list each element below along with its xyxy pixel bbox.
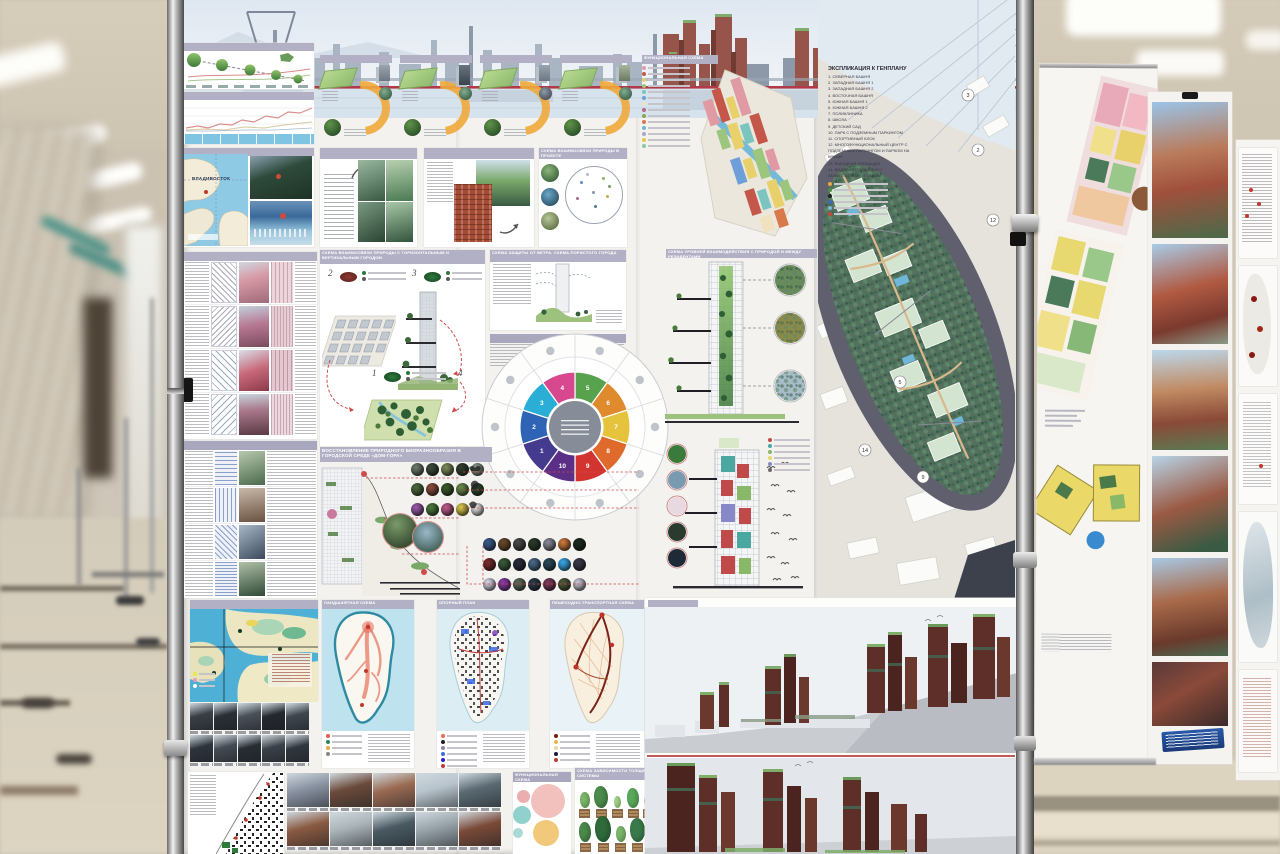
site-photo: [262, 735, 285, 766]
legend-row: [441, 746, 477, 750]
display-pole-left: [167, 0, 184, 854]
species-photo-dot: [483, 558, 496, 571]
species-photo-dot: [573, 538, 586, 551]
transport-graphic: [550, 609, 644, 731]
species-matrix-lower: [483, 538, 633, 598]
species-photo-dot: [471, 483, 484, 496]
reference-graphic: [437, 609, 529, 731]
legend-row: [642, 138, 690, 142]
analogues-table-2: [184, 441, 317, 598]
cycle-diagrams-row: [320, 55, 640, 147]
venn-title: ФУНКЦИОНАЛЬНАЯ СХЕМА: [513, 772, 571, 782]
site-photo: [238, 703, 261, 734]
venn-circle: [533, 820, 559, 846]
cycle-diagram: [480, 63, 554, 149]
location-label: ВЛАДИВОСТОК: [192, 176, 230, 181]
wheel-segment-number: 3: [540, 400, 544, 407]
legend-row: [768, 444, 810, 448]
before-after-panel-2: [424, 148, 534, 247]
transport-legend: [554, 734, 590, 764]
legend-row: [828, 206, 888, 210]
stand-foot: [116, 596, 144, 605]
site-photo: [238, 735, 261, 766]
legend-row: [554, 758, 590, 762]
site-photo: [416, 773, 458, 811]
site-photo: [330, 812, 372, 850]
species-photo-dot: [426, 463, 439, 476]
site-photo: [330, 773, 372, 811]
pole-clamp: [1012, 214, 1038, 232]
render-photo: [1152, 350, 1228, 450]
marina-photo: [250, 201, 312, 245]
site-photo: [286, 735, 309, 766]
legend-row: [642, 132, 690, 136]
interaction-title: СХЕМА УРОВНЕЙ ВЗАИМОДЕЙСТВИЯ С ПРИРОДОЙ …: [666, 249, 817, 258]
legend-row: [642, 120, 690, 124]
wheel-segment-number: 7: [614, 424, 618, 431]
species-photo-dot: [471, 463, 484, 476]
site-photo: [459, 773, 501, 811]
stand-crossbar: [92, 572, 164, 577]
step-number: 1: [372, 368, 377, 378]
chart-axis-strip: [184, 134, 314, 144]
figure-ground-graphic: [216, 772, 284, 854]
aerial-photo: [250, 156, 312, 199]
legend-row: [828, 194, 888, 198]
plan-number: 9: [921, 475, 924, 481]
interaction-legend: [768, 438, 810, 474]
wheel-segment-number: 8: [606, 448, 610, 455]
plan-number: 3: [966, 93, 969, 99]
legend-row: [642, 66, 690, 70]
site-photo: [287, 812, 329, 850]
stand-pole: [77, 468, 81, 586]
legend-row: [642, 102, 690, 106]
exhibit-label-plaque: [1161, 728, 1224, 752]
site-photo: [214, 703, 237, 734]
sketch-map: [1239, 512, 1277, 662]
masterplan: 23591214 ЭКСПЛИКАЦИЯ К ГЕНПЛАНУ 1. СЕВЕР…: [818, 0, 1015, 618]
legend-row: [193, 672, 215, 676]
species-photo-dot: [558, 538, 571, 551]
plan-number: 5: [898, 380, 901, 386]
render-photo: [1152, 558, 1228, 656]
pole-clamp: [164, 740, 187, 756]
tree-species: [627, 788, 639, 818]
legend-row: [642, 90, 690, 94]
stand-foot: [56, 754, 92, 764]
perspective-render-1: [645, 607, 1017, 753]
bathymetry-map: [190, 600, 318, 700]
industrial-photos-grid: [190, 703, 318, 767]
species-photo-dot: [543, 558, 556, 571]
reference-title: ОПОРНЫЙ ПЛАН: [437, 600, 529, 609]
species-photo-dot: [498, 538, 511, 551]
site-photo: [214, 735, 237, 766]
legend-row: [642, 72, 690, 76]
sketch-map: [1239, 148, 1277, 258]
floor-plan-graphic: [1035, 70, 1157, 631]
plan-number: 14: [862, 448, 868, 454]
step-number: 4: [458, 368, 463, 378]
transport-map: ПЕШЕХОДНО-ТРАНСПОРТНАЯ СХЕМА: [550, 600, 644, 768]
genplan-item: 10. ПАРК С ПОДЗЕМНЫМ ПАРКИНГОМ: [828, 130, 914, 136]
legend-row: [193, 678, 215, 682]
species-photo-dot: [411, 503, 424, 516]
evolution-chart: [184, 43, 314, 89]
legend-row: [642, 114, 690, 118]
cycle-diagram: [560, 63, 634, 149]
evolution-chart-graphic: [184, 51, 314, 87]
venn-diagram: ФУНКЦИОНАЛЬНАЯ СХЕМА: [513, 772, 571, 854]
exhibition-photo: ВЛАДИВОСТОК: [0, 0, 1280, 854]
genplan-item: 12. МНОГОФУНКЦИОНАЛЬНЫЙ ЦЕНТР С ПОДЗЕМНЫ…: [828, 142, 914, 161]
binder-clip-icon: [1182, 92, 1198, 99]
vladivostok-map: [184, 154, 248, 246]
render-photo: [1152, 244, 1228, 344]
photo-circle: [541, 164, 559, 182]
plan-number: 12: [990, 218, 996, 224]
legend-row: [768, 438, 810, 442]
legend-row: [642, 84, 690, 88]
venn-circle: [531, 784, 565, 818]
species-photo-dot: [558, 578, 571, 591]
climate-chart-graphic: [184, 100, 314, 134]
photo-circle: [541, 212, 559, 230]
legend-row: [326, 740, 362, 744]
species-photo-dot: [483, 578, 496, 591]
porous-city-thumb: [596, 262, 622, 308]
nature-in-project-panel: СХЕМА ВЗАИМОСВЯЗИ ПРИРОДЫ В ПРОЕКТЕ: [539, 148, 627, 247]
legend-row: [441, 740, 477, 744]
render-divider-line: [647, 755, 1015, 757]
species-photo-dot: [483, 538, 496, 551]
floor-grout-line: [0, 786, 78, 795]
cycle-diagram: [320, 63, 394, 149]
pole-clamp: [1014, 736, 1036, 751]
explication-list: ЭКСПЛИКАЦИЯ К ГЕНПЛАНУ 1. СЕВЕРНАЯ БАШНЯ…: [828, 66, 914, 218]
legend-row: [828, 188, 888, 192]
ratio-oval: [424, 272, 441, 282]
species-photo-dot: [513, 578, 526, 591]
transport-title: ПЕШЕХОДНО-ТРАНСПОРТНАЯ СХЕМА: [550, 600, 644, 609]
landscape-title: ЛАНДШАФТНАЯ СХЕМА: [322, 600, 414, 609]
stand-foot: [136, 638, 160, 646]
stand-pole: [150, 298, 154, 593]
site-photo: [459, 812, 501, 850]
ceiling-light: [1246, 30, 1280, 50]
landscape-graphic: [322, 609, 414, 731]
stand-foot: [22, 698, 54, 708]
render-photo: [1152, 456, 1228, 552]
species-photo-dot: [456, 463, 469, 476]
competition-board: ВЛАДИВОСТОК: [183, 0, 1019, 854]
legend-row: [642, 78, 690, 82]
wind-tower-diagram: [534, 262, 592, 324]
analogues-table-1: [184, 252, 317, 439]
wheel-segment-number: 10: [559, 463, 567, 470]
green-city-collage: [358, 160, 413, 242]
site-photo: [287, 773, 329, 811]
legend-row: [828, 212, 888, 216]
species-photo-dot: [441, 463, 454, 476]
legend-row: [828, 200, 888, 204]
tower-photo: [324, 174, 354, 240]
species-photo-dot: [543, 578, 556, 591]
ratio-oval: [340, 272, 357, 282]
floor: [0, 518, 185, 854]
wheel-segment-number: 5: [586, 385, 590, 392]
tree-species: [615, 826, 626, 852]
render-photo: [1152, 102, 1228, 238]
legend-row: [768, 468, 810, 472]
blurred-poster-stand: [126, 226, 162, 531]
tree-species: [612, 796, 623, 818]
species-photo-dot: [513, 558, 526, 571]
nature-city-scheme: СХЕМА ВЗАИМОСВЯЗИ ПРИРОДЫ С ГОРИЗОНТАЛЬН…: [320, 250, 485, 446]
side-panel-plans: [1035, 64, 1158, 765]
wheel-segment-number: 6: [606, 400, 610, 407]
cycle-diagram: [400, 63, 474, 149]
side-panel-renders: [1148, 92, 1232, 764]
species-photo-dot: [441, 503, 454, 516]
binder-clip-icon: [183, 378, 193, 402]
habitat-photo-circle: [383, 514, 417, 548]
site-photo: [190, 735, 213, 766]
pole-joint: [167, 388, 184, 394]
legend-row: [554, 740, 590, 744]
species-photo-dot: [513, 538, 526, 551]
reference-legend: [441, 734, 477, 770]
legend-row: [326, 752, 362, 756]
tree-species: [579, 792, 590, 818]
doorway-dark: [84, 298, 112, 478]
venn-circle: [513, 828, 523, 838]
biodiversity-title: ВОССТАНОВЛЕНИЕ ПРИРОДНОГО БИОРАЗНООБРАЗИ…: [320, 447, 492, 462]
species-photo-dot: [528, 538, 541, 551]
climate-chart: [184, 92, 314, 144]
landscape-map: ЛАНДШАФТНАЯ СХЕМА: [322, 600, 414, 768]
legend-row: [441, 758, 477, 762]
species-photo-dot: [456, 483, 469, 496]
exhibition-hall-background: [0, 0, 185, 854]
species-photo-dot: [528, 558, 541, 571]
figure-ground-map: [188, 772, 284, 854]
legend-row: [326, 734, 362, 738]
species-photo-dot: [573, 578, 586, 591]
ratio-oval: [384, 372, 401, 382]
sketch-map: [1239, 670, 1277, 772]
side-panel-sketches: [1236, 140, 1280, 780]
explication-title: ЭКСПЛИКАЦИЯ К ГЕНПЛАНУ: [828, 66, 914, 72]
wheel-segment-number: 9: [586, 463, 590, 470]
tree-species: [630, 818, 645, 852]
sketch-map: [1239, 394, 1277, 504]
site-photo: [373, 812, 415, 850]
legend-row: [326, 746, 362, 750]
forest-diagram: [364, 386, 450, 444]
tree-species: [595, 816, 611, 852]
wind-protection-scheme: СХЕМА ЗАЩИТЫ ОТ ВЕТРА. СХЕМА ПОРИСТОГО Г…: [490, 250, 626, 330]
plan-number: 2: [976, 148, 979, 154]
site-photo: [286, 703, 309, 734]
wheel-segment-number: 1: [540, 448, 544, 455]
site-photo: [373, 773, 415, 811]
relation-circle: [565, 166, 623, 224]
perspective-render-2: [645, 758, 1017, 854]
render-photo: [1152, 662, 1228, 726]
species-photo-dot: [426, 503, 439, 516]
legend-row: [642, 96, 690, 100]
stand-crossbar-right: [1034, 758, 1156, 765]
legend-row: [768, 450, 810, 454]
legend-row: [768, 456, 810, 460]
brick-building-photo: [454, 184, 492, 242]
site-photos-grid: [287, 773, 509, 851]
species-matrix-upper: [411, 463, 516, 523]
wind-title: СХЕМА ЗАЩИТЫ ОТ ВЕТРА. СХЕМА ПОРИСТОГО Г…: [490, 250, 626, 262]
display-pole-right: [1016, 0, 1034, 854]
species-photo-dot: [441, 483, 454, 496]
site-photo: [190, 703, 213, 734]
horizontal-city-diagram: [322, 308, 396, 372]
species-photo-dot: [471, 503, 484, 516]
pole-clamp: [1013, 552, 1037, 568]
species-photo-dot: [456, 503, 469, 516]
legend-row: [768, 462, 810, 466]
explication-marks: [828, 182, 888, 216]
pole-clamp-black: [1010, 232, 1026, 246]
species-photo-dot: [528, 578, 541, 591]
legend-row: [193, 684, 215, 688]
legend-row: [642, 144, 690, 148]
landscape-legend: [326, 734, 362, 758]
genplan-item: 14. ВИДОВАЯ ПЛОЩАДКА С АМФИТЕАТРАМИ И СА…: [828, 167, 914, 179]
legend-row: [441, 752, 477, 756]
legend-row: [554, 734, 590, 738]
tree-species: [579, 822, 591, 852]
venn-circle: [513, 806, 531, 824]
nature-in-project-title: СХЕМА ВЗАИМОСВЯЗИ ПРИРОДЫ В ПРОЕКТЕ: [539, 148, 627, 159]
legend-row: [441, 764, 477, 768]
photo-circle: [541, 188, 559, 206]
vertical-city-diagram: [398, 290, 458, 400]
species-photo-dot: [411, 463, 424, 476]
step-number: 3: [412, 268, 417, 278]
location-map-block: ВЛАДИВОСТОК: [184, 148, 314, 247]
nature-city-title: СХЕМА ВЗАИМОСВЯЗИ ПРИРОДЫ С ГОРИЗОНТАЛЬН…: [320, 250, 485, 264]
blurred-poster-board: [0, 126, 93, 519]
functional-scheme-axon: [695, 58, 813, 248]
ceiling-light: [1066, 0, 1221, 36]
arrow-icon: [498, 216, 522, 236]
step-number: 2: [328, 268, 333, 278]
before-after-panel-1: [320, 148, 417, 247]
wheel-segment-number: 4: [561, 385, 565, 392]
species-photo-dot: [411, 483, 424, 496]
site-photo: [262, 703, 285, 734]
reference-plan-map: ОПОРНЫЙ ПЛАН: [437, 600, 529, 768]
legend-row: [642, 126, 690, 130]
legend-row: [642, 108, 690, 112]
habitat-photo-circle: [413, 522, 443, 552]
legend-row: [554, 746, 590, 750]
species-photo-dot: [498, 578, 511, 591]
sketch-map: [1239, 266, 1277, 386]
species-photo-dot: [558, 558, 571, 571]
species-photo-dot: [498, 558, 511, 571]
species-photo-dot: [573, 558, 586, 571]
render-panel: [645, 598, 1017, 854]
species-photo-dot: [426, 483, 439, 496]
species-photo-dot: [543, 538, 556, 551]
site-photo: [416, 812, 458, 850]
venn-circle: [517, 790, 530, 803]
tree-species: [594, 786, 608, 818]
legend-row: [828, 182, 888, 186]
bathy-legend: [193, 672, 215, 690]
legend-row: [441, 734, 477, 738]
functional-legend: [642, 66, 690, 150]
tower-section-1: [663, 258, 808, 430]
floor-grout-line: [0, 586, 125, 591]
legend-row: [554, 752, 590, 756]
wheel-segment-number: 2: [532, 424, 536, 431]
